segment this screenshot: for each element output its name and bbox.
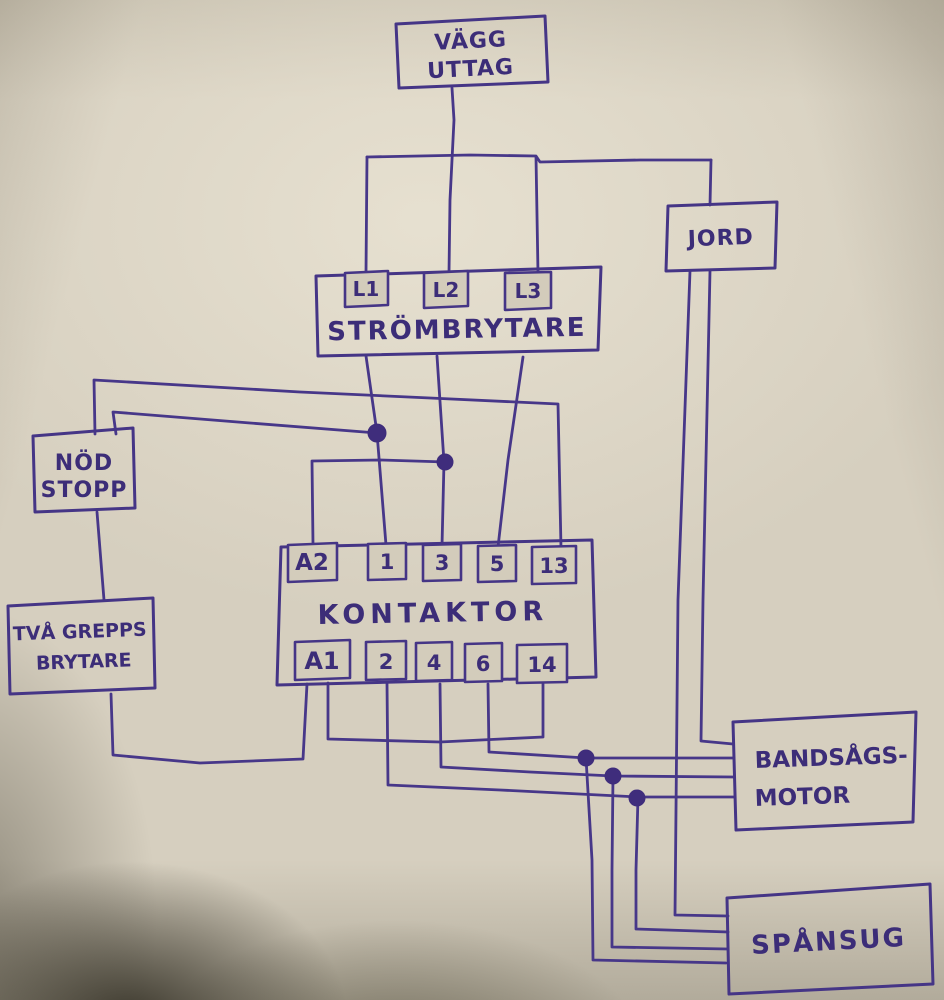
terminal-4-label: 4 (427, 651, 442, 675)
terminal-14-label: 14 (527, 653, 556, 677)
terminal-1-label: 1 (380, 550, 395, 574)
wire-l3-to-terminal5 (498, 357, 523, 547)
wire-nodstopp-to-terminal13 (94, 380, 561, 548)
terminal-l1-label: L1 (353, 277, 380, 301)
vagg-uttag-label-line1: VÄGG (434, 26, 508, 56)
wire-mains-bus (367, 155, 711, 162)
strombrytare-label: STRÖMBRYTARE (327, 310, 587, 348)
wiring-diagram: VÄGG UTTAG L1 L2 L3 STRÖMBRYTARE JORD NÖ… (0, 0, 944, 1000)
bandsags-motor-label-line2: MOTOR (754, 783, 851, 812)
terminal-a1-label: A1 (304, 647, 339, 675)
spansug-label: SPÅNSUG (750, 921, 906, 961)
terminal-a2-label: A2 (295, 550, 329, 576)
wire-l1-to-terminal1 (366, 356, 386, 545)
terminal-2-label: 2 (379, 650, 394, 674)
junction-dot-terminal2-branch (629, 790, 645, 806)
junction-dot-terminal4-branch (605, 768, 621, 784)
wires (94, 88, 734, 963)
nod-stopp-box: NÖD STOPP (33, 428, 135, 512)
wire-bus-drop-l1 (366, 157, 367, 272)
wire-junction2-to-spansug (636, 797, 728, 932)
terminal-3-label: 3 (435, 551, 450, 575)
wire-l2-to-terminal3 (437, 356, 444, 546)
terminal-5-label: 5 (490, 552, 505, 576)
vagg-uttag-label-line2: UTTAG (427, 55, 515, 85)
terminal-l2-label: L2 (433, 278, 460, 302)
junction-dot-l2-a2 (437, 454, 453, 470)
vagg-uttag-box: VÄGG UTTAG (396, 16, 548, 88)
junction-dot-l1-nodstopp (368, 424, 386, 442)
terminal-6-label: 6 (476, 652, 491, 676)
tva-grepps-label-line1: TVÅ GREPPS (13, 617, 147, 646)
wire-junction4-to-spansug (612, 776, 728, 949)
jord-box: JORD (666, 202, 777, 271)
wire-a1-to-terminal14 (328, 683, 543, 742)
kontaktor-label: KONTAKTOR (317, 596, 548, 631)
terminal-13-label: 13 (539, 554, 568, 578)
kontaktor-box: A2 1 3 5 13 KONTAKTOR A1 2 4 6 14 (277, 540, 596, 685)
spansug-box: SPÅNSUG (727, 884, 933, 994)
wire-tvagrepps-to-a1 (111, 684, 307, 763)
wire-nodstopp-to-tvagrepps (97, 512, 104, 600)
strombrytare-box: L1 L2 L3 STRÖMBRYTARE (316, 267, 601, 356)
wire-bus-drop-jord (710, 160, 711, 205)
wire-jord-to-motor (701, 271, 733, 744)
bandsags-motor-box: BANDSÅGS- MOTOR (733, 712, 916, 830)
wire-nodstopp-to-l1-junction (113, 412, 377, 434)
tva-grepps-brytare-box: TVÅ GREPPS BRYTARE (8, 598, 155, 694)
wire-jord-to-spansug (675, 271, 728, 916)
nod-stopp-label-line1: NÖD (55, 450, 113, 476)
junction-dot-terminal6-branch (578, 750, 594, 766)
jord-label: JORD (685, 225, 754, 252)
wire-wall-outlet-feed (449, 88, 454, 273)
bandsags-motor-label-line1: BANDSÅGS- (754, 741, 908, 774)
nod-stopp-label-line2: STOPP (41, 478, 128, 503)
tva-grepps-label-line2: BRYTARE (36, 649, 132, 674)
wire-terminal6-to-motor (488, 684, 734, 758)
terminal-l3-label: L3 (515, 279, 542, 303)
wire-bus-drop-l3 (536, 157, 538, 273)
